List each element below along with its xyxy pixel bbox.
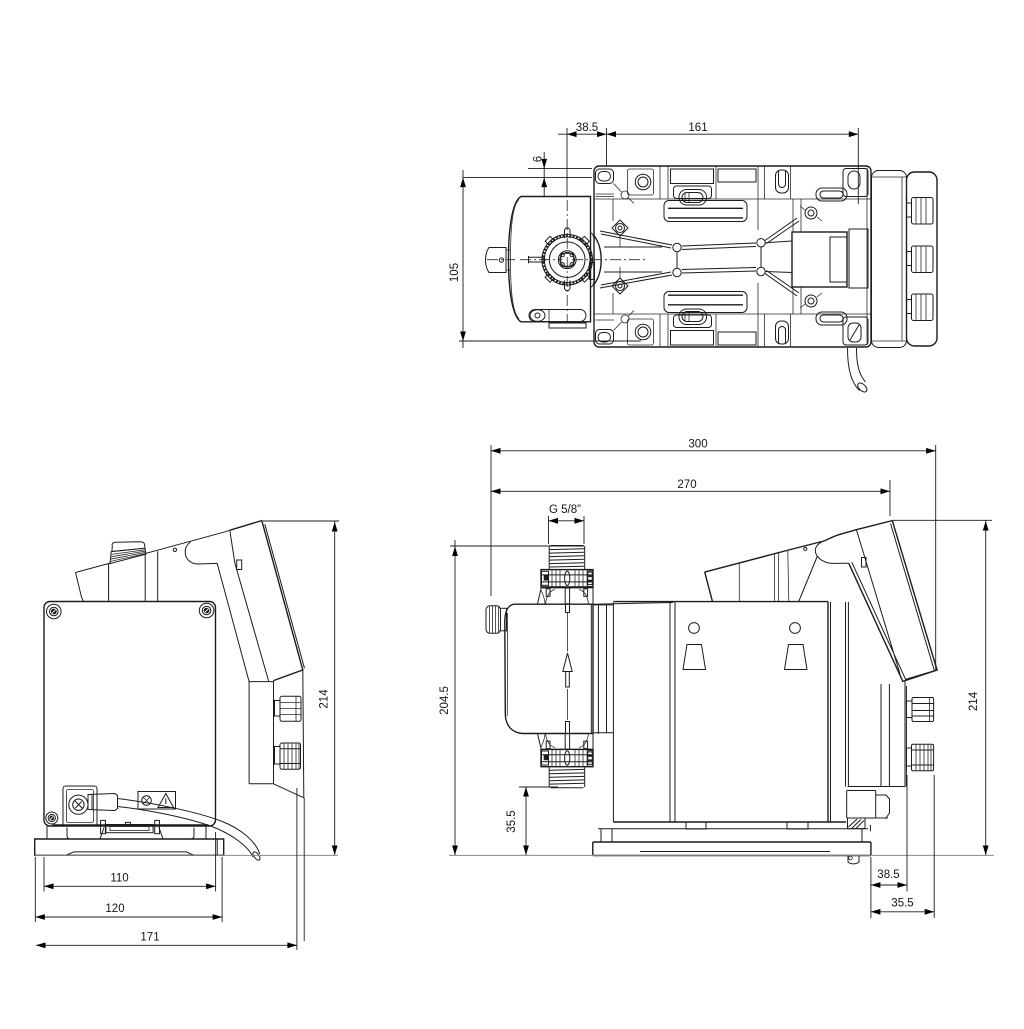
svg-text:204.5: 204.5 bbox=[439, 686, 451, 715]
svg-text:35.5: 35.5 bbox=[891, 898, 913, 910]
svg-text:171: 171 bbox=[140, 932, 159, 944]
svg-text:214: 214 bbox=[319, 689, 331, 709]
svg-text:270: 270 bbox=[677, 479, 696, 491]
svg-text:6: 6 bbox=[533, 156, 545, 162]
svg-text:214: 214 bbox=[968, 691, 980, 711]
svg-text:35.5: 35.5 bbox=[506, 810, 518, 832]
svg-text:105: 105 bbox=[449, 263, 461, 282]
svg-text:161: 161 bbox=[688, 122, 707, 134]
svg-text:G 5/8”: G 5/8” bbox=[549, 504, 581, 516]
svg-text:110: 110 bbox=[110, 873, 128, 885]
svg-text:300: 300 bbox=[688, 439, 707, 451]
svg-text:38.5: 38.5 bbox=[576, 122, 598, 134]
svg-text:38.5: 38.5 bbox=[877, 869, 899, 881]
svg-text:120: 120 bbox=[105, 903, 124, 915]
